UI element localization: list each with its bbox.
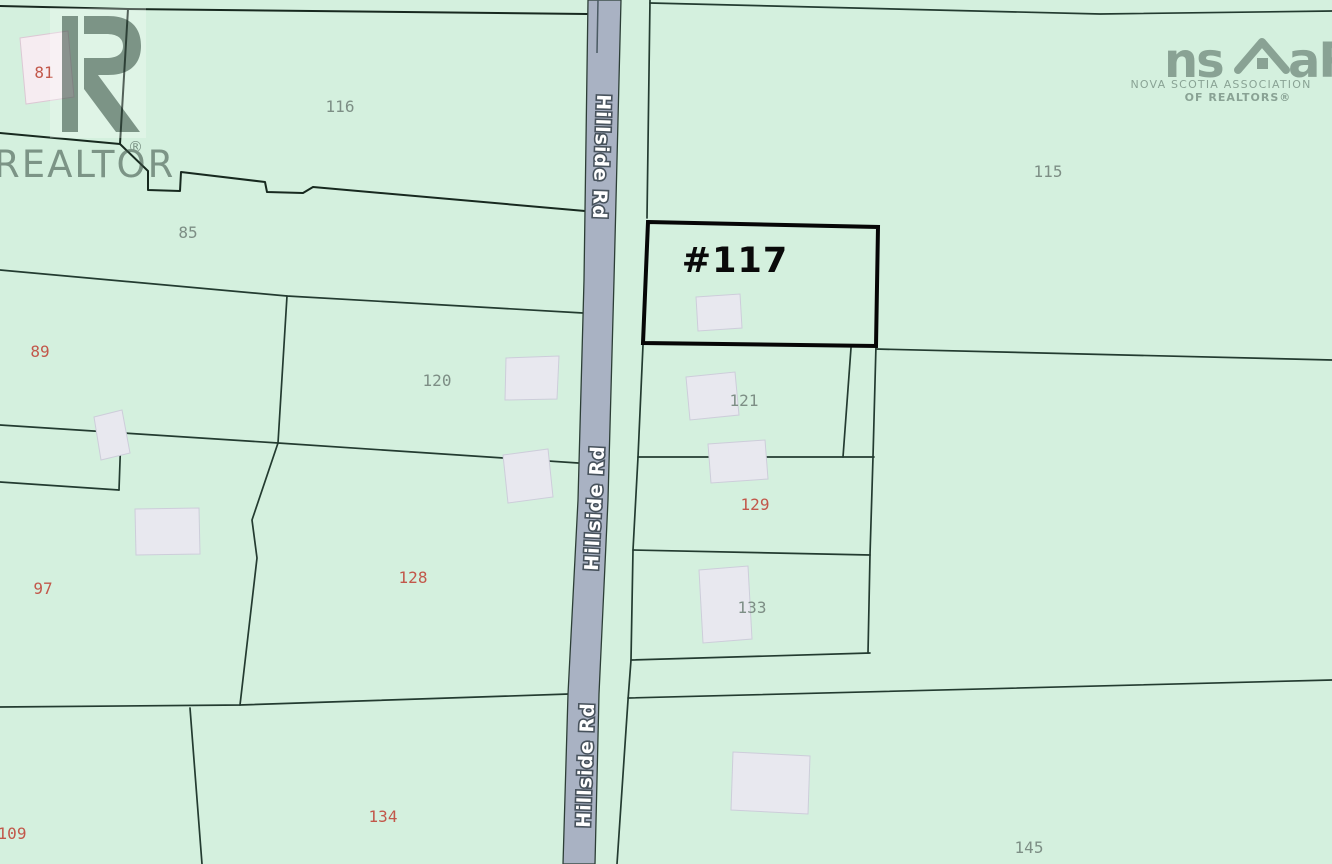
parcel-map-canvas: #117 81 116 85 89 115 120 121 129 97 128…	[0, 0, 1332, 864]
road-label-upper: Hillside Rd	[588, 94, 614, 220]
parcel-label-129: 129	[741, 495, 770, 514]
parcel-label-145: 145	[1015, 838, 1044, 857]
parcel-label-97: 97	[33, 579, 52, 598]
parcel-label-128: 128	[399, 568, 428, 587]
road-label-text: Hillside Rd	[588, 94, 614, 220]
road-label-lower: Hillside Rd	[573, 702, 599, 828]
nsar-tagline-line2: OF REALTORS®	[1185, 91, 1292, 104]
building-footprint	[135, 508, 200, 555]
parcel-label-89: 89	[30, 342, 49, 361]
parcel-label-134: 134	[369, 807, 398, 826]
road-centerline-fragment	[597, 0, 598, 53]
realtor-registered-mark: ®	[128, 138, 143, 156]
building-footprint	[503, 449, 553, 503]
parcel-label-85: 85	[178, 223, 197, 242]
road-label-text: Hillside Rd	[573, 702, 599, 828]
building-footprint	[696, 294, 742, 331]
parcel-map: #117 81 116 85 89 115 120 121 129 97 128…	[0, 0, 1332, 864]
building-footprint	[731, 752, 810, 814]
parcel-label-115: 115	[1034, 162, 1063, 181]
building-footprint	[505, 356, 559, 400]
building-footprint	[708, 440, 768, 483]
map-background	[0, 0, 1332, 864]
parcel-label-109: 109	[0, 824, 26, 843]
highlighted-parcel-117-label: #117	[682, 241, 788, 281]
parcel-label-120: 120	[423, 371, 452, 390]
parcel-label-133: 133	[738, 598, 767, 617]
realtor-wordmark: REALTOR	[0, 143, 175, 186]
parcel-label-121: 121	[730, 391, 759, 410]
nsar-tagline-line1: NOVA SCOTIA ASSOCIATION	[1130, 78, 1311, 91]
parcel-label-116: 116	[326, 97, 355, 116]
